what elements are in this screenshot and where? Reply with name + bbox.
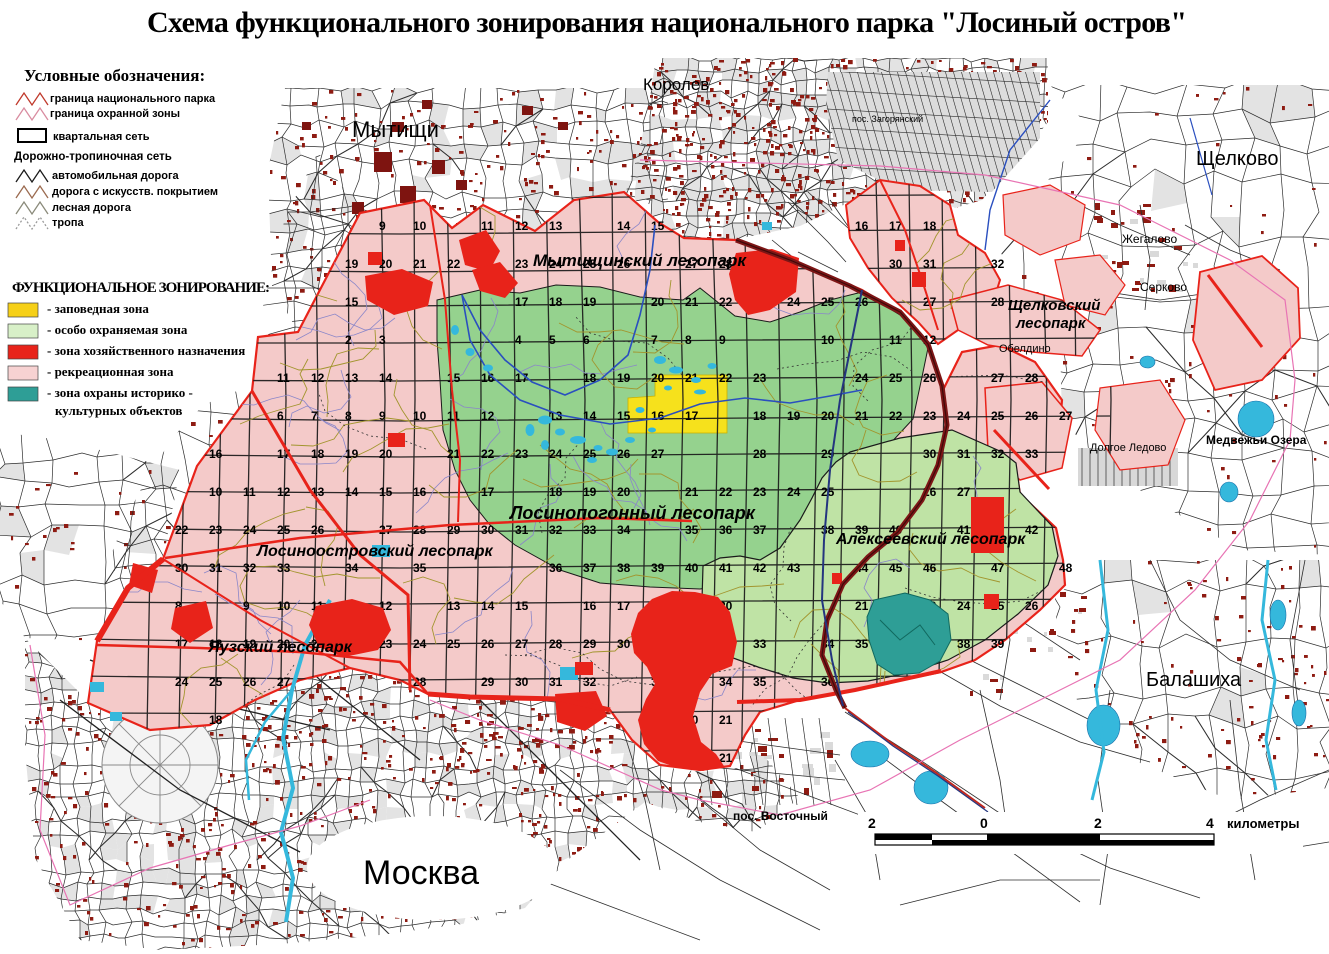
svg-text:10: 10	[277, 599, 291, 613]
svg-text:47: 47	[991, 561, 1005, 575]
svg-text:15: 15	[617, 409, 631, 423]
svg-text:38: 38	[821, 523, 835, 537]
svg-text:40: 40	[685, 561, 699, 575]
svg-text:24: 24	[855, 371, 869, 385]
svg-text:25: 25	[821, 295, 835, 309]
svg-text:культурных объектов: культурных объектов	[55, 403, 182, 418]
svg-text:Лосиноостровский лесопарк: Лосиноостровский лесопарк	[256, 543, 494, 560]
svg-text:2: 2	[345, 333, 352, 347]
svg-text:48: 48	[1059, 561, 1073, 575]
svg-text:- зона охраны историко -: - зона охраны историко -	[47, 385, 193, 400]
svg-text:7: 7	[651, 333, 658, 347]
svg-text:46: 46	[923, 561, 937, 575]
svg-text:26: 26	[1025, 409, 1039, 423]
svg-text:дорога с искусств. покрытием: дорога с искусств. покрытием	[52, 186, 218, 198]
svg-text:33: 33	[583, 523, 597, 537]
svg-text:Мытищи: Мытищи	[352, 117, 439, 142]
svg-text:23: 23	[753, 371, 767, 385]
svg-text:31: 31	[957, 447, 971, 461]
svg-text:27: 27	[991, 371, 1005, 385]
svg-text:36: 36	[719, 523, 733, 537]
svg-text:14: 14	[481, 599, 495, 613]
svg-text:- рекреационная зона: - рекреационная зона	[47, 364, 174, 379]
svg-text:21: 21	[855, 599, 869, 613]
svg-text:35: 35	[855, 637, 869, 651]
svg-text:23: 23	[209, 523, 223, 537]
svg-text:пос. Восточный: пос. Восточный	[733, 809, 828, 823]
svg-text:автомобильная дорога: автомобильная дорога	[52, 170, 180, 182]
svg-text:15: 15	[515, 599, 529, 613]
svg-text:26: 26	[923, 371, 937, 385]
svg-text:Балашиха: Балашиха	[1146, 669, 1242, 691]
svg-text:30: 30	[889, 257, 903, 271]
svg-text:29: 29	[481, 675, 495, 689]
svg-text:Условные обозначения:: Условные обозначения:	[24, 66, 205, 85]
svg-text:10: 10	[413, 409, 427, 423]
svg-text:30: 30	[515, 675, 529, 689]
svg-text:22: 22	[719, 371, 733, 385]
svg-text:21: 21	[855, 409, 869, 423]
svg-text:35: 35	[753, 675, 767, 689]
svg-text:12: 12	[277, 485, 291, 499]
svg-text:4: 4	[1206, 815, 1214, 831]
svg-text:31: 31	[209, 561, 223, 575]
svg-text:24: 24	[787, 485, 801, 499]
svg-text:18: 18	[209, 713, 223, 727]
svg-text:30: 30	[481, 523, 495, 537]
svg-text:21: 21	[719, 713, 733, 727]
svg-text:28: 28	[413, 675, 427, 689]
svg-text:25: 25	[209, 675, 223, 689]
svg-text:4: 4	[515, 333, 522, 347]
svg-text:11: 11	[889, 333, 902, 347]
svg-text:26: 26	[1025, 599, 1039, 613]
svg-text:27: 27	[277, 675, 291, 689]
svg-text:25: 25	[277, 523, 291, 537]
svg-text:6: 6	[583, 333, 590, 347]
svg-text:9: 9	[379, 409, 386, 423]
svg-text:9: 9	[379, 219, 386, 233]
svg-text:24: 24	[957, 599, 971, 613]
svg-text:20: 20	[379, 447, 393, 461]
svg-text:20: 20	[617, 485, 631, 499]
svg-text:28: 28	[753, 447, 767, 461]
svg-text:27: 27	[957, 485, 971, 499]
svg-text:25: 25	[447, 637, 461, 651]
svg-text:17: 17	[515, 295, 529, 309]
svg-text:21: 21	[685, 485, 699, 499]
svg-text:Схема функционального зонирова: Схема функционального зонирования национ…	[147, 6, 1187, 39]
svg-text:34: 34	[345, 561, 359, 575]
svg-text:21: 21	[685, 295, 699, 309]
svg-text:Жегалово: Жегалово	[1122, 232, 1177, 246]
svg-text:5: 5	[549, 333, 556, 347]
svg-text:8: 8	[685, 333, 692, 347]
svg-text:25: 25	[991, 409, 1005, 423]
svg-text:21: 21	[413, 257, 427, 271]
svg-text:33: 33	[1025, 447, 1039, 461]
svg-text:19: 19	[787, 409, 801, 423]
svg-text:39: 39	[991, 637, 1005, 651]
svg-text:11: 11	[277, 371, 290, 385]
svg-text:18: 18	[549, 485, 563, 499]
svg-text:- заповедная зона: - заповедная зона	[47, 301, 149, 316]
svg-text:25: 25	[889, 371, 903, 385]
svg-text:11: 11	[243, 485, 256, 499]
svg-text:26: 26	[243, 675, 257, 689]
svg-text:20: 20	[651, 295, 665, 309]
svg-text:8: 8	[345, 409, 352, 423]
svg-text:Мытищинский лесопарк: Мытищинский лесопарк	[533, 251, 747, 270]
svg-text:22: 22	[719, 485, 733, 499]
svg-text:27: 27	[1059, 409, 1073, 423]
svg-text:45: 45	[889, 561, 903, 575]
svg-text:2: 2	[868, 815, 876, 831]
svg-text:37: 37	[753, 523, 767, 537]
svg-text:19: 19	[583, 485, 597, 499]
svg-text:22: 22	[175, 523, 189, 537]
svg-text:Лосинопогонный лесопарк: Лосинопогонный лесопарк	[508, 503, 756, 523]
svg-text:23: 23	[515, 257, 529, 271]
svg-text:20: 20	[651, 371, 665, 385]
svg-text:23: 23	[753, 485, 767, 499]
svg-text:18: 18	[311, 447, 325, 461]
svg-text:27: 27	[515, 637, 529, 651]
svg-text:12: 12	[481, 409, 495, 423]
svg-text:28: 28	[549, 637, 563, 651]
svg-text:граница охранной зоны: граница охранной зоны	[50, 108, 180, 120]
svg-text:14: 14	[617, 219, 631, 233]
svg-text:42: 42	[753, 561, 767, 575]
svg-text:2: 2	[1094, 815, 1102, 831]
svg-text:41: 41	[719, 561, 733, 575]
svg-text:18: 18	[753, 409, 767, 423]
svg-text:7: 7	[311, 409, 318, 423]
svg-text:32: 32	[549, 523, 563, 537]
svg-text:Королев: Королев	[643, 75, 709, 94]
svg-text:лесная дорога: лесная дорога	[52, 202, 132, 214]
svg-text:14: 14	[345, 485, 359, 499]
svg-text:14: 14	[379, 371, 393, 385]
svg-text:38: 38	[957, 637, 971, 651]
svg-text:39: 39	[651, 561, 665, 575]
svg-text:35: 35	[685, 523, 699, 537]
svg-text:20: 20	[821, 409, 835, 423]
svg-text:22: 22	[889, 409, 903, 423]
svg-text:- зона хозяйственного назначен: - зона хозяйственного назначения	[47, 343, 245, 358]
svg-text:18: 18	[923, 219, 937, 233]
svg-text:Москва: Москва	[363, 854, 479, 892]
svg-text:15: 15	[651, 219, 665, 233]
svg-text:26: 26	[617, 447, 631, 461]
svg-text:24: 24	[413, 637, 427, 651]
svg-text:23: 23	[515, 447, 529, 461]
svg-text:Алексеевский лесопарк: Алексеевский лесопарк	[835, 531, 1026, 548]
svg-text:18: 18	[549, 295, 563, 309]
svg-text:17: 17	[617, 599, 631, 613]
svg-text:24: 24	[549, 447, 563, 461]
svg-text:29: 29	[583, 637, 597, 651]
svg-text:32: 32	[243, 561, 257, 575]
svg-text:28: 28	[1025, 371, 1039, 385]
svg-text:32: 32	[991, 447, 1005, 461]
svg-text:19: 19	[345, 257, 359, 271]
svg-text:17: 17	[685, 409, 699, 423]
svg-text:3: 3	[379, 333, 386, 347]
svg-text:15: 15	[345, 295, 359, 309]
svg-text:23: 23	[923, 409, 937, 423]
svg-text:34: 34	[617, 523, 631, 537]
svg-text:квартальная сеть: квартальная сеть	[53, 131, 150, 143]
svg-text:22: 22	[719, 295, 733, 309]
svg-text:13: 13	[549, 219, 563, 233]
svg-text:33: 33	[753, 637, 767, 651]
svg-text:10: 10	[821, 333, 835, 347]
svg-text:Дорожно-тропиночная сеть: Дорожно-тропиночная сеть	[14, 151, 172, 163]
svg-text:31: 31	[515, 523, 529, 537]
svg-text:16: 16	[583, 599, 597, 613]
svg-text:19: 19	[617, 371, 631, 385]
svg-text:16: 16	[413, 485, 427, 499]
svg-text:33: 33	[277, 561, 291, 575]
svg-text:34: 34	[719, 675, 733, 689]
svg-text:11: 11	[481, 219, 494, 233]
svg-text:16: 16	[209, 447, 223, 461]
svg-text:35: 35	[413, 561, 427, 575]
svg-text:22: 22	[481, 447, 495, 461]
svg-text:30: 30	[617, 637, 631, 651]
svg-text:- особо охраняемая зона: - особо охраняемая зона	[47, 322, 188, 337]
svg-text:13: 13	[447, 599, 461, 613]
svg-text:Долгое Ледово: Долгое Ледово	[1090, 442, 1166, 454]
svg-text:тропа: тропа	[52, 217, 84, 229]
svg-text:26: 26	[481, 637, 495, 651]
svg-text:Медвежьи Озера: Медвежьи Озера	[1206, 433, 1307, 447]
svg-text:37: 37	[583, 561, 597, 575]
svg-text:30: 30	[923, 447, 937, 461]
svg-text:16: 16	[651, 409, 665, 423]
svg-text:38: 38	[617, 561, 631, 575]
svg-text:километры: километры	[1227, 816, 1299, 831]
svg-text:15: 15	[447, 371, 461, 385]
svg-text:13: 13	[345, 371, 359, 385]
svg-text:Яузский лесопарк: Яузский лесопарк	[207, 639, 353, 656]
svg-text:24: 24	[243, 523, 257, 537]
svg-text:24: 24	[175, 675, 189, 689]
svg-text:12: 12	[311, 371, 325, 385]
svg-text:42: 42	[1025, 523, 1039, 537]
svg-text:22: 22	[447, 257, 461, 271]
svg-text:32: 32	[991, 257, 1005, 271]
svg-text:15: 15	[379, 485, 393, 499]
svg-text:0: 0	[980, 815, 988, 831]
svg-text:9: 9	[719, 333, 726, 347]
svg-text:Обелдино: Обелдино	[999, 343, 1051, 355]
svg-text:24: 24	[957, 409, 971, 423]
svg-text:12: 12	[515, 219, 529, 233]
svg-text:19: 19	[345, 447, 359, 461]
svg-text:граница национального парка: граница национального парка	[50, 93, 216, 105]
svg-text:10: 10	[209, 485, 223, 499]
svg-text:43: 43	[787, 561, 801, 575]
svg-text:32: 32	[583, 675, 597, 689]
svg-text:Щелково: Щелково	[1196, 148, 1279, 170]
svg-text:31: 31	[923, 257, 937, 271]
svg-text:27: 27	[651, 447, 665, 461]
svg-text:28: 28	[991, 295, 1005, 309]
svg-text:10: 10	[413, 219, 427, 233]
svg-text:19: 19	[583, 295, 597, 309]
svg-text:лесопарк: лесопарк	[1015, 315, 1087, 332]
svg-text:17: 17	[481, 485, 495, 499]
svg-text:16: 16	[855, 219, 869, 233]
svg-text:пос. Загорянский: пос. Загорянский	[852, 114, 923, 124]
svg-text:24: 24	[787, 295, 801, 309]
svg-text:Серково: Серково	[1140, 280, 1187, 294]
svg-text:36: 36	[549, 561, 563, 575]
svg-text:Щелковский: Щелковский	[1008, 297, 1100, 314]
svg-text:ФУНКЦИОНАЛЬНОЕ ЗОНИРОВАНИЕ:: ФУНКЦИОНАЛЬНОЕ ЗОНИРОВАНИЕ:	[12, 280, 270, 296]
svg-text:6: 6	[277, 409, 284, 423]
svg-text:28: 28	[413, 523, 427, 537]
